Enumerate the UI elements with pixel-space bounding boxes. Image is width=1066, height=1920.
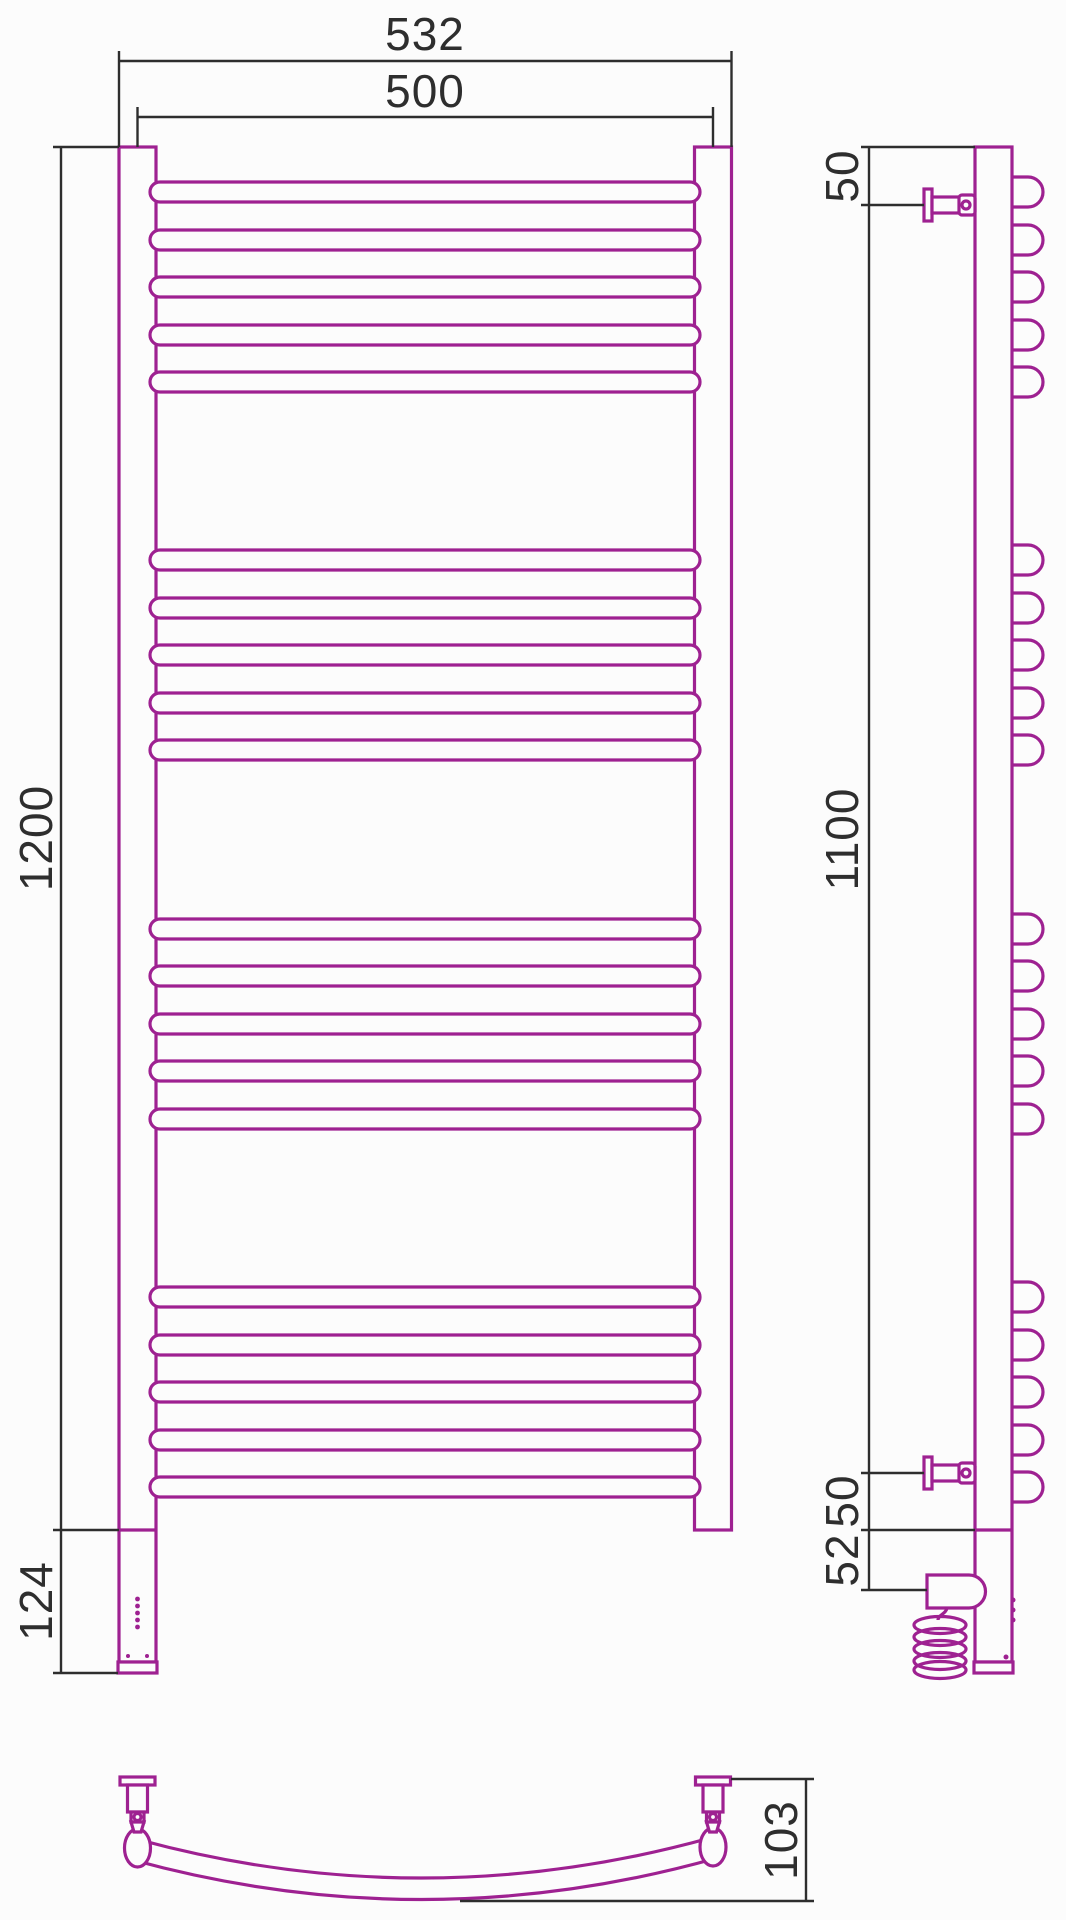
dimension-label-50-bottom: 50 (816, 1474, 868, 1527)
bar-stub (1011, 1330, 1043, 1360)
bar-stub (1011, 1282, 1043, 1312)
bar-stub (1011, 735, 1043, 765)
bar-stub (1011, 1472, 1043, 1502)
dimension-height: 1200 124 (10, 147, 119, 1673)
towel-bar (150, 1430, 700, 1450)
collector-base-cap-side (974, 1662, 1013, 1673)
bottom-view: 103 (120, 1777, 814, 1901)
towel-bar (150, 1061, 700, 1081)
bar-stub (1011, 272, 1043, 302)
bracket-fitting-right (696, 1777, 731, 1832)
dimension-label-1100: 1100 (816, 788, 868, 891)
towel-bar (150, 230, 700, 250)
technical-drawing-canvas: 532 500 1200 124 (0, 0, 1066, 1920)
bracket-fitting-left (120, 1777, 155, 1832)
towel-bar (150, 1335, 700, 1355)
dimension-label-52: 52 (816, 1533, 868, 1586)
bar-stub (1011, 640, 1043, 670)
towel-bar (150, 1477, 700, 1497)
towel-bar (150, 277, 700, 297)
collector-profile (975, 147, 1012, 1662)
dimension-side-stack: 50 1100 50 52 (816, 147, 975, 1590)
towel-bar (150, 1382, 700, 1402)
dimension-label-1200: 1200 (10, 785, 62, 891)
right-collector-tube (695, 147, 732, 1530)
bar-stub (1011, 225, 1043, 255)
bar-stub (1011, 1009, 1043, 1039)
collector-section-right (700, 1828, 726, 1866)
bar-stub (1011, 1104, 1043, 1134)
bar-stub (1011, 593, 1043, 623)
curved-bar-section (133, 1838, 717, 1900)
wall-bracket-top (924, 189, 975, 221)
towel-bar-groups (150, 182, 700, 1497)
bar-stub (1011, 1377, 1043, 1407)
dimension-label-103: 103 (755, 1800, 807, 1880)
side-view: 50 1100 50 52 (816, 147, 1043, 1679)
collector-section-left (125, 1829, 151, 1867)
power-cable-coil (914, 1608, 966, 1679)
towel-bar (150, 372, 700, 392)
towel-bar (150, 919, 700, 939)
towel-bar (150, 1287, 700, 1307)
towel-bar (150, 182, 700, 202)
bar-stub (1011, 545, 1043, 575)
towel-bar (150, 1014, 700, 1034)
bar-stubs (1011, 177, 1043, 1502)
towel-bar (150, 598, 700, 618)
dimension-label-124: 124 (10, 1561, 62, 1641)
dimension-label-532: 532 (385, 8, 465, 60)
bar-stub (1011, 1425, 1043, 1455)
towel-bar (150, 693, 700, 713)
bar-stub (1011, 1056, 1043, 1086)
bar-stub (1011, 914, 1043, 944)
towel-bar (150, 550, 700, 570)
towel-bar (150, 740, 700, 760)
bar-stub (1011, 961, 1043, 991)
towel-bar (150, 966, 700, 986)
towel-bar (150, 1109, 700, 1129)
dimension-label-500: 500 (385, 65, 465, 117)
dimension-width-centers: 500 (138, 65, 714, 147)
bar-stub (1011, 177, 1043, 207)
collector-base-cap (118, 1662, 157, 1673)
bar-stub (1011, 320, 1043, 350)
bar-stub (1011, 367, 1043, 397)
heating-element (927, 1575, 986, 1608)
front-view: 532 500 1200 124 (10, 8, 732, 1673)
towel-rail-drawing: 532 500 1200 124 (0, 0, 1066, 1920)
dimension-label-50-top: 50 (816, 149, 868, 202)
towel-bar (150, 325, 700, 345)
wall-bracket-bottom (924, 1457, 975, 1489)
bar-stub (1011, 688, 1043, 718)
towel-bar (150, 645, 700, 665)
